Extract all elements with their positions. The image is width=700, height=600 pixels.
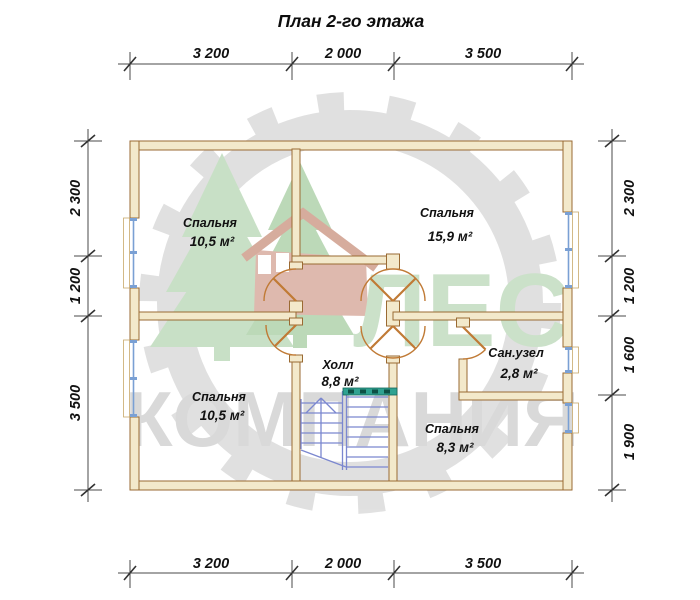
- floor-plan-page: ЛЕС КОМПАНИЯ План 2-го этажа: [0, 0, 700, 600]
- dim-bottom-3: 3 500: [465, 556, 501, 572]
- room-label-bedroom-bottomright: Спальня: [425, 422, 480, 436]
- room-label-hall: Холл: [321, 358, 353, 372]
- room-area-bedroom-bottomleft: 10,5 м²: [200, 408, 245, 423]
- dim-left-3: 3 500: [68, 385, 84, 421]
- watermark-logo: ЛЕС КОМПАНИЯ: [125, 103, 579, 503]
- page-title: План 2-го этажа: [278, 11, 425, 31]
- room-area-bedroom-topleft: 10,5 м²: [190, 234, 235, 249]
- room-label-bedroom-topleft: Спальня: [183, 216, 238, 230]
- room-label-bedroom-topright: Спальня: [420, 206, 475, 220]
- dim-left-1: 2 300: [68, 180, 84, 217]
- window-bedroom-topleft: [124, 218, 138, 288]
- dim-bottom-1: 3 200: [193, 556, 229, 572]
- room-area-bathroom: 2,8 м²: [500, 366, 539, 381]
- room-label-bathroom: Сан.узел: [488, 346, 544, 360]
- dimension-chain-top: 3 200 2 000 3 500: [118, 46, 584, 80]
- room-area-bedroom-bottomright: 8,3 м²: [437, 440, 475, 455]
- dim-right-2: 1 200: [622, 268, 638, 304]
- room-label-bedroom-bottomleft: Спальня: [192, 390, 247, 404]
- stairs-railing: [343, 388, 397, 395]
- dim-right-4: 1 900: [622, 424, 638, 460]
- dim-top-3: 3 500: [465, 46, 501, 62]
- dimension-chain-right: 2 300 1 200 1 600 1 900: [598, 129, 638, 502]
- room-area-bedroom-topright: 15,9 м²: [428, 229, 473, 244]
- dim-top-1: 3 200: [193, 46, 229, 62]
- dimension-chain-bottom: 3 200 2 000 3 500: [118, 556, 584, 588]
- dim-bottom-2: 2 000: [324, 556, 361, 572]
- dim-left-2: 1 200: [68, 268, 84, 304]
- floor-plan-drawing: ЛЕС КОМПАНИЯ План 2-го этажа: [0, 0, 700, 600]
- dim-right-3: 1 600: [622, 337, 638, 373]
- dimension-chain-left: 2 300 1 200 3 500: [68, 129, 102, 502]
- dim-top-2: 2 000: [324, 46, 361, 62]
- dim-right-1: 2 300: [622, 180, 638, 217]
- room-area-hall: 8,8 м²: [322, 374, 360, 389]
